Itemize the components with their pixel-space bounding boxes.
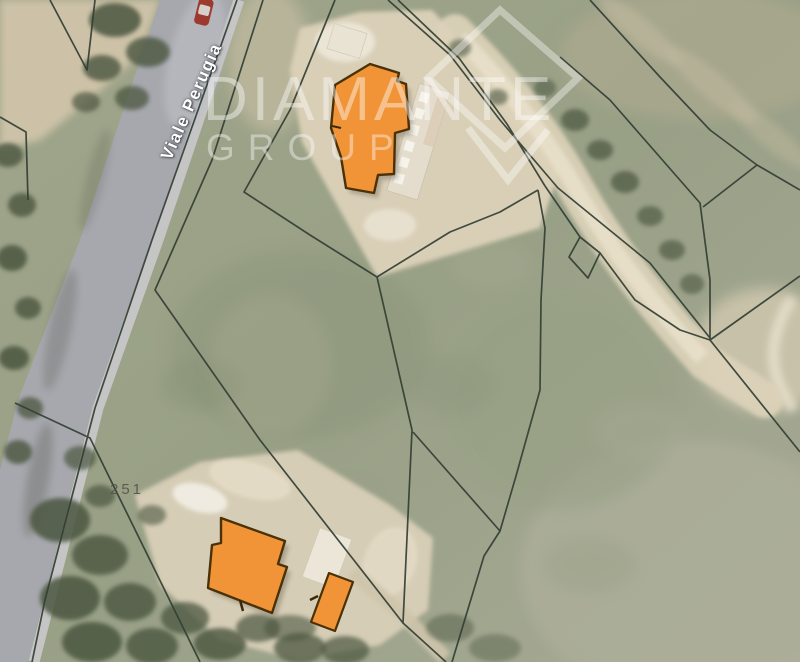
- map-viewport[interactable]: DIAMANTE GROUP Viale Perugia 251: [0, 0, 800, 662]
- satellite-map: [0, 0, 800, 662]
